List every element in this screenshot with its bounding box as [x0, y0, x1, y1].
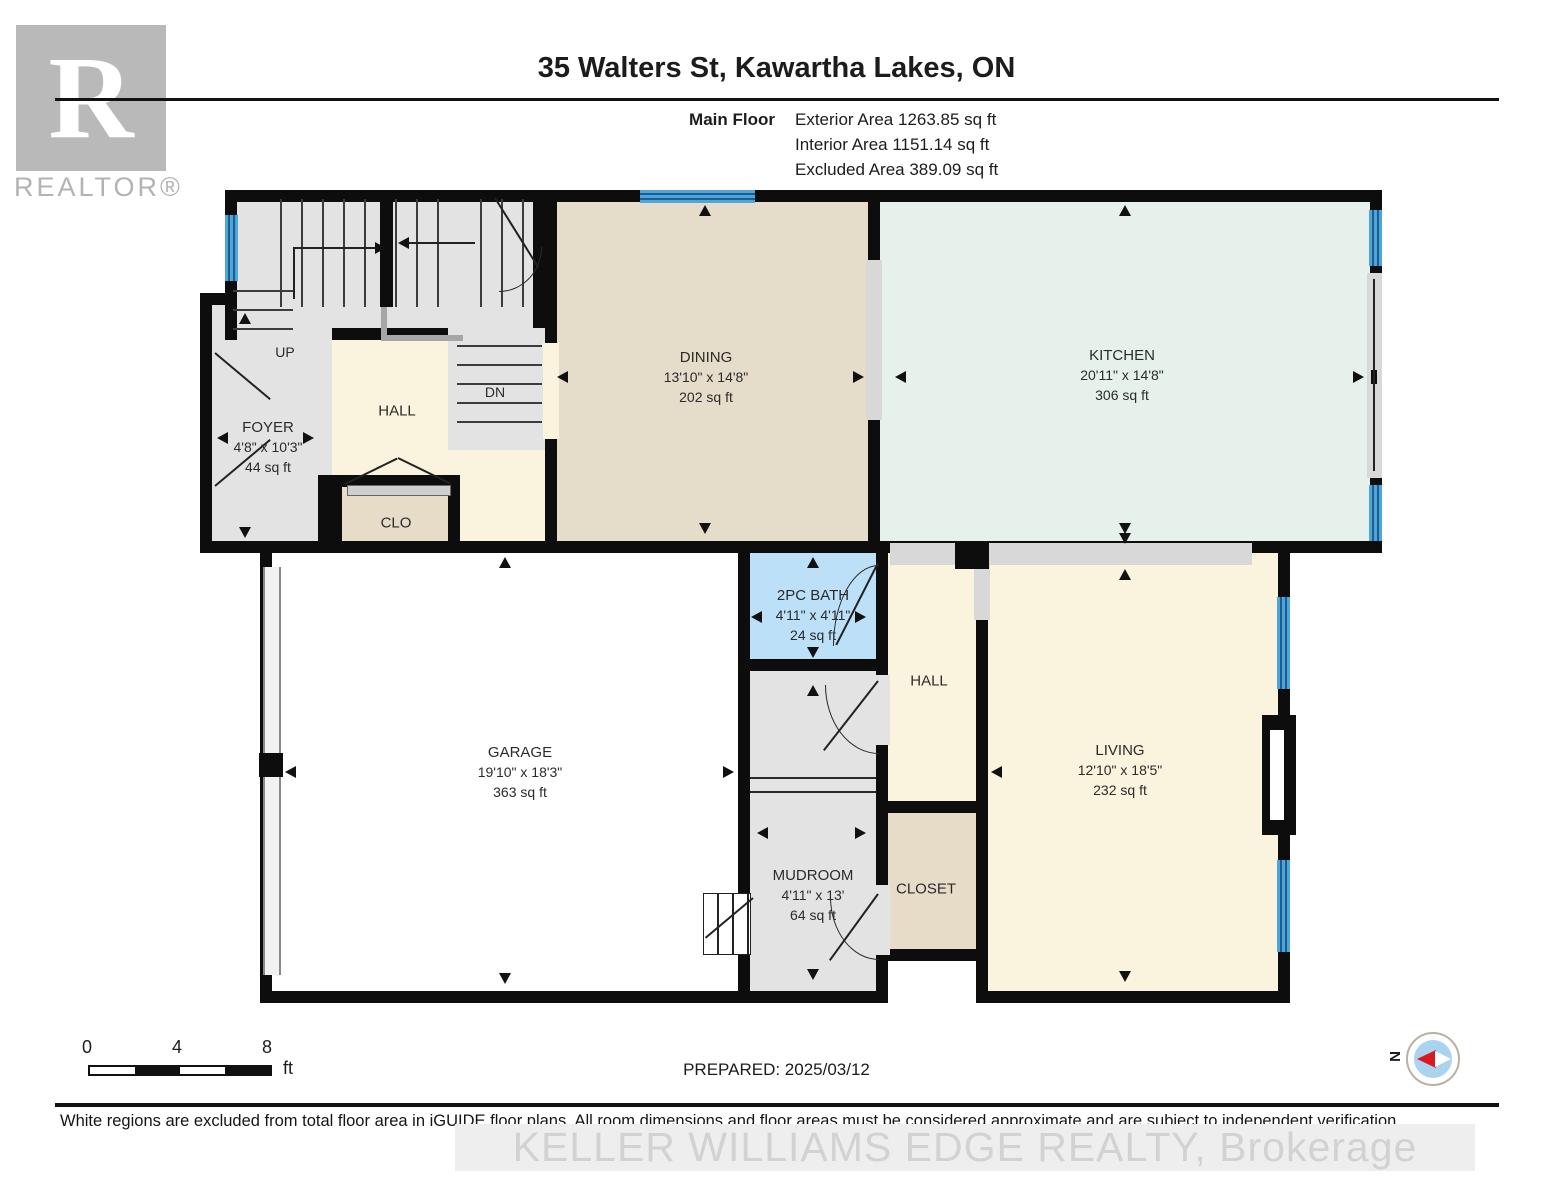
kitchen-living-threshold [890, 543, 1252, 565]
kitchen-arrow-left-icon [895, 371, 906, 383]
dining-kitchen-opening [866, 260, 882, 420]
kitchen-window-bottom [1369, 485, 1382, 541]
garage-door-post [259, 753, 283, 777]
clo-door-slab [347, 485, 451, 496]
dining-dims: 13'10" x 14'8" [664, 368, 749, 388]
dining-name: DINING [680, 349, 733, 366]
clo-label: CLO [381, 513, 412, 534]
foyer-area: 44 sq ft [234, 458, 303, 478]
compass-north-label: N [1387, 1051, 1404, 1062]
foyer-arrow-left-icon [217, 432, 228, 444]
mudroom-name: MUDROOM [773, 867, 854, 884]
stairwell-trim-h [381, 335, 463, 341]
floor-plan: FOYER 4'8" x 10'3" 44 sq ft HALL CLO UP … [195, 185, 1395, 1005]
garage-name: GARAGE [488, 744, 552, 761]
foyer-arrow-up-icon [239, 313, 251, 324]
living-area: 232 sq ft [1078, 781, 1163, 801]
bath-arrow-up-icon [807, 557, 819, 568]
mudroom-arrow-up-icon [807, 685, 819, 696]
living-label: LIVING 12'10" x 18'5" 232 sq ft [1078, 740, 1163, 800]
mudroom-area: 64 sq ft [773, 906, 854, 926]
scale-four: 4 [172, 1037, 182, 1058]
footer-divider [55, 1103, 1499, 1107]
bath-arrow-left-icon [751, 611, 762, 623]
interior-area: Interior Area 1151.14 sq ft [795, 135, 989, 155]
kitchen-window-top [1369, 210, 1382, 266]
dining-area: 202 sq ft [664, 388, 749, 408]
hall-lower-label: HALL [910, 671, 948, 692]
living-window-top [1277, 597, 1290, 689]
garage-steps [703, 893, 751, 955]
compass-icon [1406, 1032, 1460, 1086]
scale-zero: 0 [82, 1037, 92, 1058]
dining-window [640, 190, 755, 203]
up-arrow-shaft-h [293, 247, 377, 249]
bath-arrow-down-icon [807, 647, 819, 658]
garage-arrow-down-icon [499, 973, 511, 984]
bath-area: 24 sq ft [776, 626, 851, 646]
living-name: LIVING [1095, 742, 1144, 759]
kitchen-area: 306 sq ft [1080, 386, 1164, 406]
hall-dining-opening [543, 343, 559, 439]
bath-name: 2PC BATH [777, 587, 849, 604]
mudroom-dims: 4'11" x 13' [773, 886, 854, 906]
floor-plan-page: { "header": { "logo_letter": "R", "logo_… [0, 0, 1553, 1200]
mudroom-arrow-right-icon [855, 827, 866, 839]
page-title: 35 Walters St, Kawartha Lakes, ON [0, 52, 1553, 85]
scale-eight: 8 [262, 1037, 272, 1058]
mudroom-label: MUDROOM 4'11" x 13' 64 sq ft [773, 865, 854, 925]
stairs-window [225, 215, 238, 281]
living-arrow-left-icon [991, 766, 1002, 778]
living-arrow-down-icon [1119, 971, 1131, 982]
foyer-arrow-right-icon [303, 432, 314, 444]
bath-dims: 4'11" x 4'11" [776, 606, 851, 626]
mudroom-arrow-left-icon [757, 827, 768, 839]
mudroom-threshold [750, 777, 876, 793]
brokerage-watermark: KELLER WILLIAMS EDGE REALTY, Brokerage [455, 1124, 1475, 1171]
garage-label: GARAGE 19'10" x 18'3" 363 sq ft [478, 742, 563, 802]
bath-label: 2PC BATH 4'11" x 4'11" 24 sq ft [776, 585, 851, 645]
compass-face [1414, 1040, 1452, 1078]
garage-arrow-up-icon [499, 557, 511, 568]
garage-dims: 19'10" x 18'3" [478, 763, 563, 783]
dn-arrow-shaft [409, 242, 475, 244]
garage-arrow-right-icon [723, 766, 734, 778]
living-arrow-up-icon [1119, 569, 1131, 580]
compass-needle-white [1435, 1051, 1451, 1067]
title-divider [55, 98, 1499, 101]
dining-label: DINING 13'10" x 14'8" 202 sq ft [664, 347, 749, 407]
foyer-dims: 4'8" x 10'3" [234, 438, 303, 458]
kitchen-sliding-door-track [1373, 279, 1375, 471]
dining-arrow-up-icon [699, 205, 711, 216]
dining-arrow-left-icon [557, 371, 568, 383]
foyer-label: FOYER 4'8" x 10'3" 44 sq ft [234, 417, 303, 477]
kitchen-dims: 20'11" x 14'8" [1080, 366, 1164, 386]
foyer-name: FOYER [242, 419, 294, 436]
dn-arrow-head-icon [398, 237, 409, 249]
threshold-arrow-down-icon [1119, 533, 1131, 544]
up-arrow-shaft-v [293, 247, 295, 299]
mudroom-arrow-down-icon [807, 969, 819, 980]
bath-arrow-right-icon [855, 611, 866, 623]
stairs-dn-label: DN [485, 383, 505, 403]
threshold-post [955, 541, 989, 569]
dining-arrow-right-icon [853, 371, 864, 383]
dining-arrow-down-icon [699, 523, 711, 534]
living-dims: 12'10" x 18'5" [1078, 761, 1163, 781]
hall-upper-label: HALL [378, 401, 416, 422]
foyer-arrow-down-icon [239, 527, 251, 538]
excluded-area: Excluded Area 389.09 sq ft [795, 160, 998, 180]
compass-needle-red [1417, 1050, 1436, 1068]
kitchen-arrow-up-icon [1119, 205, 1131, 216]
stair-dn-treads [395, 199, 458, 307]
garage-area: 363 sq ft [478, 783, 563, 803]
floor-label: Main Floor [640, 110, 775, 130]
living-window-bottom [1277, 860, 1290, 952]
stair-up-treads [280, 199, 380, 307]
closet-label: CLOSET [896, 879, 956, 900]
stairs-up-label: UP [275, 343, 294, 363]
prepared-date: PREPARED: 2025/03/12 [0, 1060, 1553, 1080]
realtor-logo-word: REALTOR® [14, 172, 183, 203]
fireplace-inner [1270, 730, 1284, 820]
kitchen-label: KITCHEN 20'11" x 14'8" 306 sq ft [1080, 345, 1164, 405]
up-arrow-head-icon [375, 242, 386, 254]
garage-arrow-left-icon [285, 766, 296, 778]
kitchen-arrow-right-icon [1353, 371, 1364, 383]
kitchen-name: KITCHEN [1089, 347, 1155, 364]
hall-living-opening [974, 565, 990, 620]
exterior-area: Exterior Area 1263.85 sq ft [795, 110, 996, 130]
foyer-hall-opening [318, 403, 332, 475]
